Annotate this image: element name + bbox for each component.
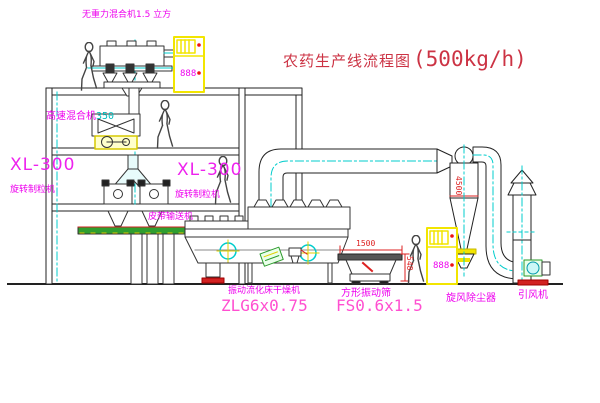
label-dryer-name: 振动流化床干燥机: [228, 287, 300, 296]
exhaust-duct: [259, 149, 452, 207]
label-high-speed-mixer: 高速混合机350: [46, 112, 114, 122]
label-belt-conveyor: 皮带输送机: [148, 213, 193, 222]
label-dryer-model: ZLG6x0.75: [221, 298, 308, 314]
indicator-light: [197, 43, 201, 47]
label-granulator-left-model: XL-300: [10, 157, 75, 174]
dimension-cyclone-height: 4500: [454, 176, 462, 195]
feed-pipe: [129, 88, 139, 116]
process-flow-diagram: 888 888 农药生产线流程图 (500kg/h) 无重力混合机1.5 立方 …: [0, 0, 600, 403]
dimension-sieve-length: 1500: [356, 240, 375, 248]
label-gravity-mixer: 无重力混合机1.5 立方: [82, 11, 171, 20]
cabinet-display: 888: [433, 261, 449, 271]
label-sieve-model: FS0.6x1.5: [336, 298, 423, 314]
control-cabinet-1: 888: [174, 37, 204, 92]
indicator-light: [450, 263, 454, 267]
indicator-light: [197, 71, 201, 75]
floor-slab-2: [46, 148, 245, 155]
label-cyclone: 旋风除尘器: [446, 294, 496, 304]
diagram-title: 农药生产线流程图 (500kg/h): [283, 47, 527, 71]
cabinet-display: 888: [180, 69, 196, 79]
control-cabinet-2: 888: [427, 228, 457, 284]
person-figure: [158, 100, 173, 148]
label-fan: 引风机: [518, 291, 548, 301]
fluid-bed-dryer-machine: [185, 200, 350, 283]
belt-conveyor-machine: [78, 227, 196, 284]
title-text: 农药生产线流程图: [283, 50, 411, 71]
label-granulator-left-name: 旋转制粒机: [10, 186, 55, 195]
granulator-right-machine: [138, 180, 170, 204]
square-sieve-machine: [338, 246, 409, 284]
granulator-left-machine: [102, 180, 134, 204]
title-capacity: (500kg/h): [413, 47, 527, 71]
label-granulator-center-name: 旋转制粒机: [175, 191, 220, 200]
indicator-light: [450, 234, 454, 238]
floor-slab-3: [46, 204, 245, 211]
dimension-sieve-height: 548: [405, 256, 413, 270]
label-granulator-center-model: XL-300: [177, 162, 242, 179]
